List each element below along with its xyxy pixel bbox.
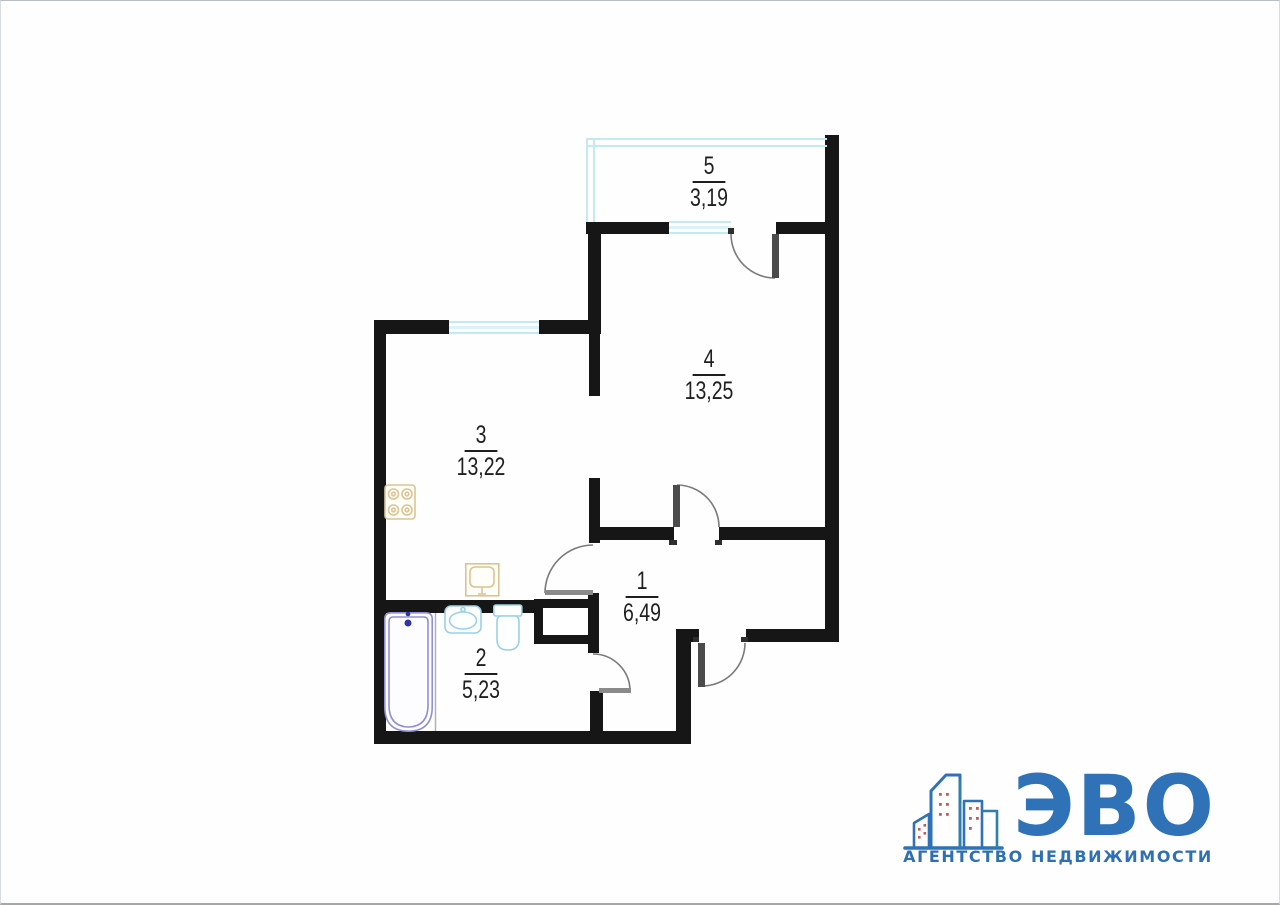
room-number: 3 (465, 422, 498, 452)
room-label-5: 5 3,19 (662, 153, 756, 211)
door-jamb-mark (669, 540, 677, 545)
room-area: 6,49 (595, 600, 689, 626)
room-label-2: 2 5,23 (434, 645, 528, 703)
kitchen-door-leaf (545, 590, 593, 595)
kitchen-sink-icon (466, 564, 499, 596)
door-jamb-mark (728, 228, 734, 234)
floor-plan-image: 5 3,19 4 13,25 3 13,22 1 6,49 2 5,23 (0, 0, 1280, 905)
room4-door-leaf (673, 485, 680, 527)
room-label-3: 3 13,22 (434, 422, 528, 480)
balcony-door-leaf (772, 234, 779, 278)
balcony-door-arc (731, 234, 775, 278)
door-jamb-mark (715, 540, 722, 545)
stove-icon (385, 485, 415, 519)
room-area: 5,23 (434, 677, 528, 703)
door-jamb-mark (693, 637, 699, 642)
bathtub-icon (385, 612, 432, 732)
logo-tagline: АГЕНТСТВО НЕДВИЖИМОСТИ (902, 847, 1214, 866)
toilet-icon (494, 605, 522, 650)
room-area: 13,22 (434, 454, 528, 480)
room-number: 1 (626, 568, 659, 598)
building-skyline-icon (902, 761, 1006, 853)
entrance-door-arc (702, 643, 745, 686)
room-area: 3,19 (662, 185, 756, 211)
entrance-door-leaf (698, 643, 705, 687)
washbasin-icon (445, 606, 481, 633)
room4-door-arc (677, 485, 719, 527)
room-label-1: 1 6,49 (595, 568, 689, 626)
logo-text: ЭВО (1013, 764, 1223, 848)
kitchen-door-arc (545, 545, 593, 593)
room-number: 5 (693, 153, 726, 183)
bathroom-door-leaf (599, 688, 631, 693)
room-area: 13,25 (662, 378, 756, 404)
room-label-4: 4 13,25 (662, 346, 756, 404)
room-number: 4 (693, 346, 726, 376)
bathroom-door-arc (593, 654, 630, 691)
room-number: 2 (465, 645, 498, 675)
door-jamb-mark (741, 637, 748, 642)
